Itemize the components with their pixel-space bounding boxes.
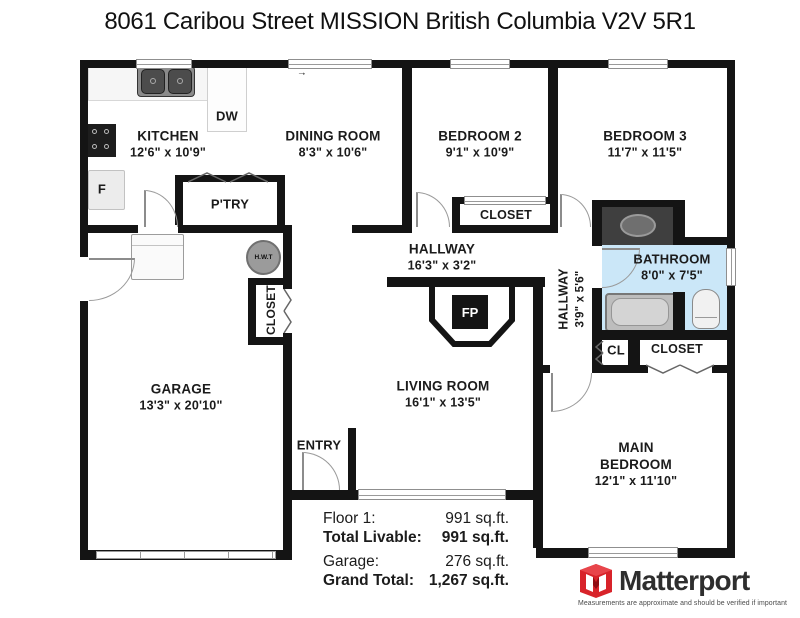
door-bedroom3 [560, 194, 591, 227]
window-bathroom [726, 248, 736, 286]
bifold-main-closet [646, 364, 714, 375]
bedroom3-dims: 11'7" x 11'5" [603, 145, 687, 161]
fp-label: FP [462, 305, 479, 320]
wall-hall-top-b [452, 225, 558, 233]
label-entry: ENTRY [297, 438, 342, 453]
room-label-bedroom3: BEDROOM 3 11'7" x 11'5" [603, 128, 687, 161]
label-closet-bed2: CLOSET [480, 208, 532, 222]
wall-dining-bed2 [402, 68, 412, 226]
window-living [358, 489, 506, 500]
window-mainbed [588, 547, 678, 558]
room-label-main-bedroom: MAIN BEDROOM 12'1" x 11'10" [595, 439, 677, 489]
room-label-living: LIVING ROOM 16'1" x 13'5" [397, 378, 490, 411]
slider-arrow: → [297, 68, 307, 79]
wall-entry-stub [348, 428, 356, 490]
matterport-wordmark: Matterport [619, 565, 749, 597]
wall-vanity-step [673, 207, 685, 245]
sink-drain-right [177, 78, 183, 84]
washer [131, 234, 184, 280]
wall-tub-toilet-stub [673, 292, 685, 334]
stove-burner [104, 129, 109, 134]
wall-bath-bottom [592, 330, 727, 340]
hot-water-tank: H.W.T [246, 240, 281, 275]
fridge [88, 170, 125, 210]
door-kitchen [144, 190, 178, 227]
label-pantry: P'TRY [211, 197, 249, 212]
matterport-tagline: Measurements are approximate and should … [578, 600, 793, 607]
room-label-hallway2: HALLWAY 3'9" x 5'6" [556, 268, 589, 329]
window-kitchen [136, 59, 192, 69]
stat-row-garage: Garage: 276 sq.ft. [323, 552, 509, 571]
wall-kitchen-divider [80, 225, 138, 233]
area-stats: Floor 1: 991 sq.ft. Total Livable: 991 s… [323, 509, 509, 590]
sink-drain-left [150, 78, 156, 84]
wall-right [727, 60, 735, 558]
bathtub-inner [611, 298, 669, 326]
wall-vanity-top [592, 200, 685, 207]
window-bedroom3 [608, 59, 668, 69]
bedroom3-name: BEDROOM 3 [603, 128, 687, 145]
mainbed-dims: 12'1" x 11'10" [595, 473, 677, 489]
mainbed-line1: MAIN [595, 439, 677, 456]
stat-value: 1,267 sq.ft. [429, 571, 509, 590]
matterport-branding: Matterport Measurements are approximate … [578, 563, 793, 607]
stove-burner [104, 144, 109, 149]
vanity-sink-oval [620, 214, 656, 237]
fireplace: FP [452, 295, 488, 329]
window-bedroom2 [450, 59, 510, 69]
wall-closetb2-left [452, 197, 460, 225]
door-garage-side [89, 258, 135, 301]
wall-garage-right [283, 225, 292, 550]
hallway2-dims: 3'9" x 5'6" [573, 268, 589, 329]
stat-value: 991 sq.ft. [442, 528, 509, 547]
garage-door [96, 551, 276, 559]
label-closet-main: CLOSET [651, 342, 703, 356]
toilet-seat-line [695, 317, 717, 318]
sliding-door-closet-bed2 [464, 196, 546, 205]
hwt-label: H.W.T [254, 254, 272, 261]
door-entry [302, 452, 340, 490]
dining-dims: 8'3" x 10'6" [285, 145, 380, 161]
wall-closetb2-right [550, 197, 558, 225]
wall-garage-closet-left [248, 278, 256, 345]
label-dw: DW [216, 109, 238, 124]
kitchen-name: KITCHEN [130, 128, 206, 145]
fold-cl-closet [594, 341, 604, 365]
hallway-dims: 16'3" x 3'2" [408, 258, 477, 274]
bedroom2-dims: 9'1" x 10'9" [438, 145, 522, 161]
matterport-logo-icon [578, 563, 614, 599]
stat-row-floor1: Floor 1: 991 sq.ft. [323, 509, 509, 528]
living-name: LIVING ROOM [397, 378, 490, 395]
mainbed-line2: BEDROOM [595, 456, 677, 473]
toilet [692, 289, 720, 329]
stat-label: Garage: [323, 552, 379, 571]
stat-value: 276 sq.ft. [445, 552, 509, 571]
door-main-bedroom [551, 373, 592, 412]
wall-mainbed-top-c [712, 365, 735, 373]
wall-mainbed-top-a [533, 365, 550, 373]
wall-hall-top-a [352, 225, 412, 233]
wall-pantry-right [277, 175, 285, 225]
label-fridge: F [98, 182, 106, 197]
room-label-bedroom2: BEDROOM 2 9'1" x 10'9" [438, 128, 522, 161]
room-label-hallway: HALLWAY 16'3" x 3'2" [408, 241, 477, 274]
stove-burner [92, 129, 97, 134]
stat-label: Total Livable: [323, 528, 422, 547]
garage-name: GARAGE [139, 381, 222, 398]
wall-bed3-bottom-right [685, 237, 727, 245]
bifold-pantry [188, 172, 268, 183]
door-bedroom2 [416, 192, 450, 227]
room-label-dining: DINING ROOM 8'3" x 10'6" [285, 128, 380, 161]
stat-label: Grand Total: [323, 571, 414, 590]
garage-dims: 13'3" x 20'10" [139, 398, 222, 414]
wall-left [80, 60, 88, 560]
bathroom-name: BATHROOM [633, 251, 710, 268]
wall-mainbed-top-b [592, 365, 648, 373]
bedroom2-name: BEDROOM 2 [438, 128, 522, 145]
hallway-name: HALLWAY [408, 241, 477, 258]
stove-burner [92, 144, 97, 149]
stat-row-grand-total: Grand Total: 1,267 sq.ft. [323, 571, 509, 590]
page-title: 8061 Caribou Street MISSION British Colu… [0, 8, 800, 36]
stat-value: 991 sq.ft. [445, 509, 509, 528]
room-label-kitchen: KITCHEN 12'6" x 10'9" [130, 128, 206, 161]
wall-living-mainbed [533, 287, 543, 548]
hallway2-name: HALLWAY [556, 268, 573, 329]
label-closet-garage: CLOSET [264, 285, 278, 335]
kitchen-dims: 12'6" x 10'9" [130, 145, 206, 161]
room-label-garage: GARAGE 13'3" x 20'10" [139, 381, 222, 414]
label-cl: CL [607, 343, 625, 358]
living-dims: 16'1" x 13'5" [397, 395, 490, 411]
wall-hall-bottom [387, 277, 545, 287]
gap-bathroom-door [592, 246, 602, 288]
gap-garage-side-door [80, 257, 88, 301]
room-label-bathroom: BATHROOM 8'0" x 7'5" [633, 251, 710, 284]
wall-pantry-bottom [178, 225, 292, 233]
stat-row-total-livable: Total Livable: 991 sq.ft. [323, 528, 509, 547]
bathroom-dims: 8'0" x 7'5" [633, 268, 710, 284]
fold-garage-closet [283, 289, 293, 333]
wall-bed2-bed3 [548, 68, 558, 198]
washer-lid-line [132, 245, 183, 246]
stat-label: Floor 1: [323, 509, 376, 528]
dining-name: DINING ROOM [285, 128, 380, 145]
